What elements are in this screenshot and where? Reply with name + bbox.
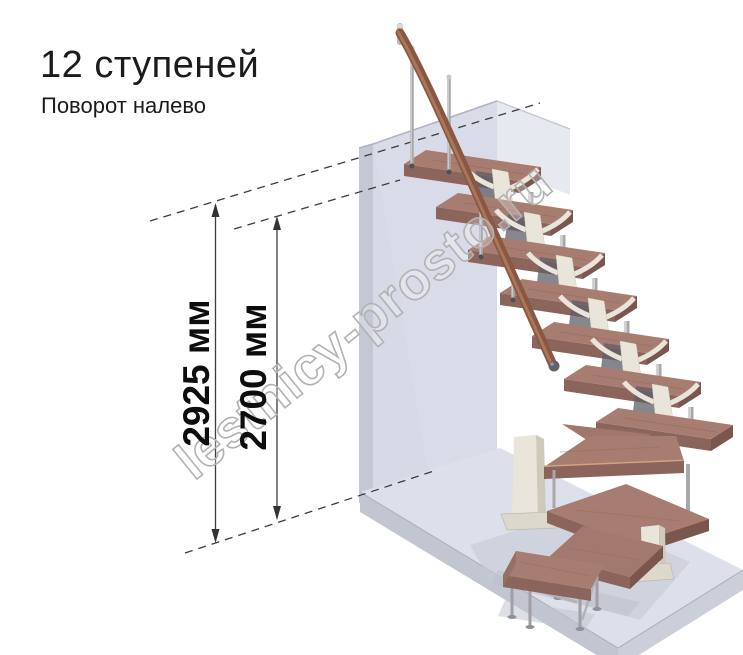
baluster-base-collar <box>410 164 415 169</box>
baluster-base-collar <box>511 298 516 303</box>
baluster-base-collar <box>447 170 452 175</box>
winder-tread-1 <box>544 436 684 479</box>
floor-slab <box>360 448 743 655</box>
staircase-illustration: lestnicy-prosto.ru <box>0 0 743 655</box>
handrail-end-ball <box>549 361 560 372</box>
staircase-diagram-page: lestnicy-prosto.ru 12 ступеней Поворот н… <box>0 0 743 655</box>
baluster-cap <box>447 75 452 80</box>
